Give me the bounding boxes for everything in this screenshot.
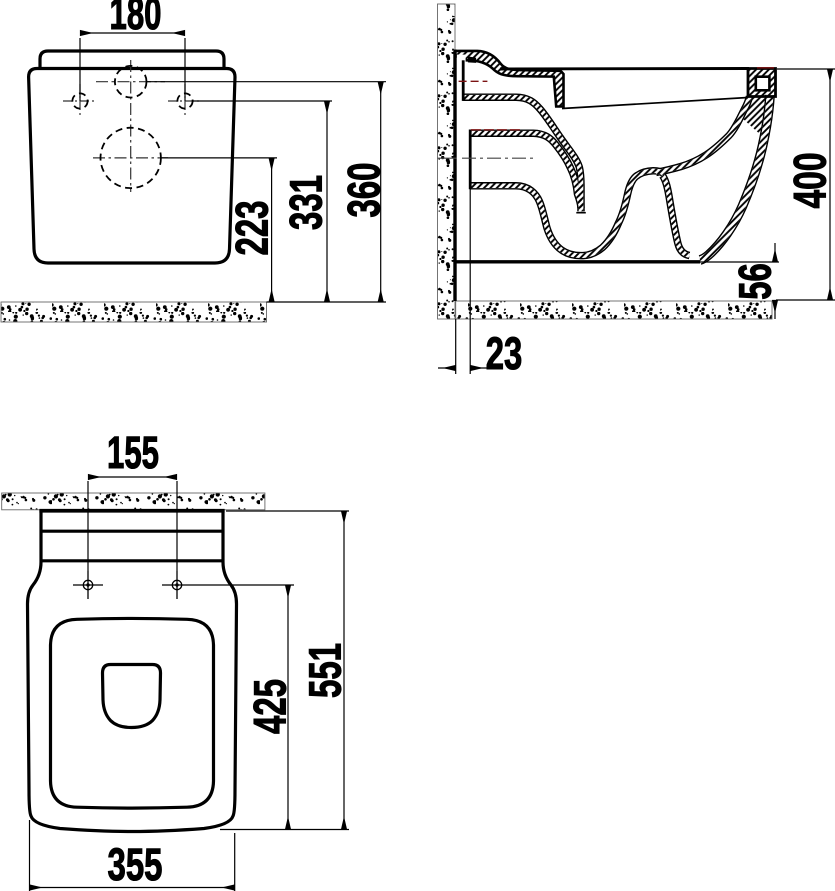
svg-text:360: 360 (339, 163, 390, 218)
svg-text:180: 180 (110, 0, 162, 39)
svg-text:223: 223 (227, 201, 278, 256)
svg-text:23: 23 (486, 328, 523, 379)
svg-text:56: 56 (730, 263, 781, 300)
svg-text:155: 155 (107, 427, 159, 478)
svg-text:355: 355 (108, 839, 163, 890)
svg-text:551: 551 (300, 643, 351, 698)
svg-text:400: 400 (785, 153, 835, 209)
svg-text:331: 331 (281, 175, 332, 230)
svg-text:425: 425 (245, 679, 296, 734)
